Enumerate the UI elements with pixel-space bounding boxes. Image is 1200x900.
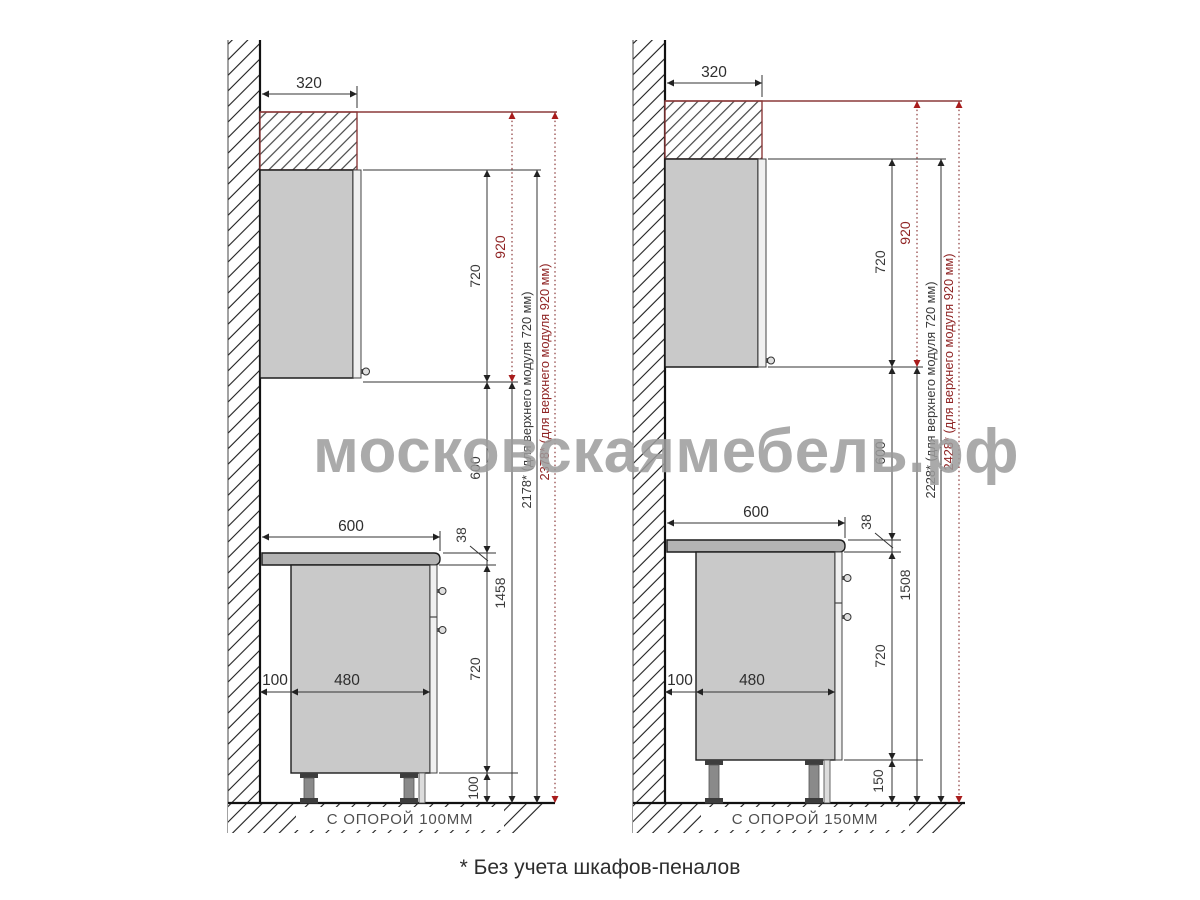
door-knob-icon <box>844 614 851 621</box>
floor-right: С ОПОРОЙ 150ММ <box>633 803 965 833</box>
drawer-knob-icon <box>844 575 851 582</box>
countertop <box>262 553 440 565</box>
wall-hatch <box>228 40 260 833</box>
floor-left: С ОПОРОЙ 100ММ <box>228 803 555 833</box>
door-knob-icon <box>439 627 446 634</box>
support-label: С ОПОРОЙ 150ММ <box>732 810 879 828</box>
upper-cabinet-body <box>665 159 758 367</box>
leg-front <box>300 773 318 804</box>
dim-1458: 1458 <box>492 577 508 608</box>
dim-offset-100: 100 <box>262 672 288 689</box>
upper-extension-920 <box>665 101 762 159</box>
dim-upper-920: 920 <box>897 221 913 245</box>
dim-countertop-600: 600 <box>743 504 769 521</box>
leg-rear <box>805 760 823 804</box>
leg-rear <box>400 773 418 804</box>
countertop <box>667 540 845 552</box>
upper-knob-icon <box>768 357 775 364</box>
dim-1508: 1508 <box>897 569 913 600</box>
dim-320: 320 <box>296 75 322 92</box>
diagram-canvas: С ОПОРОЙ 100ММ <box>0 0 1200 900</box>
dim-top-38: 38 <box>858 514 874 530</box>
support-label: С ОПОРОЙ 100ММ <box>327 810 474 828</box>
dim-offset-100: 100 <box>667 672 693 689</box>
dim-320: 320 <box>701 64 727 81</box>
base-cabinet-body <box>291 565 430 773</box>
dim-upper-720: 720 <box>467 264 483 288</box>
front-panel-strip <box>419 773 425 803</box>
upper-cabinet-body <box>260 170 353 378</box>
front-panel-strip <box>824 760 830 803</box>
leg-front <box>705 760 723 804</box>
upper-cabinet-front <box>758 159 766 367</box>
dim-legs-150: 150 <box>870 769 886 793</box>
kitchen-dimension-diagram: С ОПОРОЙ 100ММ <box>0 0 1200 900</box>
base-cabinet-front <box>835 552 842 760</box>
footnote: * Без учета шкафов-пеналов <box>460 856 741 879</box>
wall-left <box>228 40 260 833</box>
dim-upper-920: 920 <box>492 235 508 259</box>
dim-countertop-600: 600 <box>338 518 364 535</box>
dim-depth-480: 480 <box>739 672 765 689</box>
drawer-knob-icon <box>439 588 446 595</box>
upper-knob-icon <box>363 368 370 375</box>
dim-base-720: 720 <box>467 657 483 681</box>
base-cabinet-front <box>430 565 437 773</box>
base-cabinet-body <box>696 552 835 760</box>
upper-cabinet-front <box>353 170 361 378</box>
dim-top-38: 38 <box>453 527 469 543</box>
dim-base-720: 720 <box>872 644 888 668</box>
dim-legs-100: 100 <box>465 776 481 800</box>
watermark: московскаямебель.рф <box>313 417 1019 486</box>
dim-depth-480: 480 <box>334 672 360 689</box>
dim-upper-720: 720 <box>872 250 888 274</box>
upper-extension-920 <box>260 112 357 170</box>
